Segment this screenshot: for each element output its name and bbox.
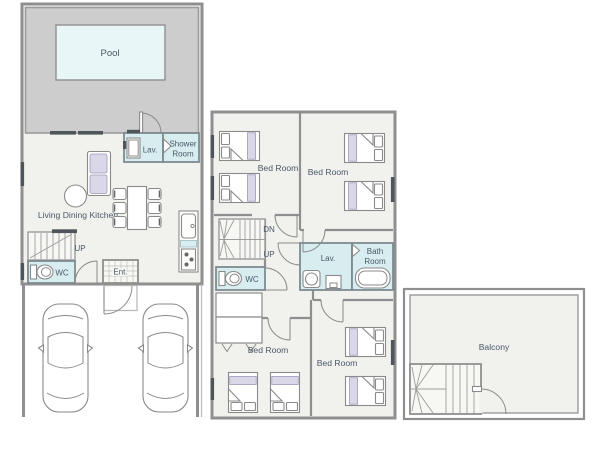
- window-bar: [21, 162, 25, 186]
- window-bar: [123, 141, 126, 149]
- shower-room-label-line2: Room: [172, 150, 194, 159]
- window-bar: [211, 176, 215, 200]
- lav-label-2f: Lav.: [321, 254, 336, 263]
- window-bar: [211, 378, 215, 400]
- bedroom-ne-label: Bed Room: [308, 167, 349, 177]
- window-bar: [50, 131, 76, 135]
- up-label: UP: [74, 244, 85, 253]
- window-bar: [52, 229, 77, 233]
- wc-label-2f: WC: [245, 275, 259, 284]
- bath-room-label-line1: Bath: [367, 247, 383, 256]
- bed-icon: [346, 377, 386, 406]
- balcony-label: Balcony: [479, 342, 510, 352]
- balcony-plan: Balcony: [404, 289, 584, 419]
- bed-icon: [346, 328, 386, 357]
- window-bar: [391, 340, 395, 365]
- bed-icon: [345, 182, 385, 211]
- first-floor-plan: Pool Lav. Shower Room Living Dining Kitc…: [21, 4, 203, 417]
- door-opening: [479, 390, 482, 413]
- bed-icon: [220, 132, 260, 161]
- lav-label: Lav.: [143, 146, 158, 155]
- round-table-icon: [65, 185, 87, 207]
- bed-icon: [229, 373, 258, 413]
- bedroom-se-label: Bed Room: [317, 358, 358, 368]
- entrance-label: Ent.: [113, 268, 127, 277]
- bath-room-label-line2: Room: [364, 257, 386, 266]
- shower-room-label-line1: Shower: [169, 140, 196, 149]
- ldk-label: Living Dining Kitchen: [38, 210, 118, 220]
- bathtub-icon: [356, 268, 391, 288]
- toilet-icon: [31, 265, 54, 279]
- washing-machine-icon: [326, 276, 341, 289]
- toilet-icon: [219, 272, 242, 286]
- car-icon: [139, 304, 193, 412]
- second-floor-plan: Bed Room Bed Room: [211, 112, 396, 418]
- window-bar: [21, 263, 25, 280]
- dining-table-icon: [128, 187, 147, 230]
- bed-icon: [271, 373, 300, 413]
- stairs-icon: [410, 364, 481, 414]
- washbasin-icon: [303, 271, 320, 288]
- stairs-icon: [28, 232, 75, 260]
- kitchen-sink-icon: [182, 214, 196, 238]
- entrance-area: Ent.: [103, 260, 138, 283]
- pool-label: Pool: [100, 48, 119, 59]
- dn-label: DN: [263, 225, 275, 234]
- wc-label: WC: [55, 269, 69, 278]
- sofa-icon: [88, 152, 111, 196]
- floor-plan-page: Pool Lav. Shower Room Living Dining Kitc…: [0, 0, 600, 450]
- bedroom-nw-label: Bed Room: [258, 163, 299, 173]
- window-bar: [127, 130, 140, 133]
- car-icon: [39, 304, 93, 412]
- floor-plan-drawing: Pool Lav. Shower Room Living Dining Kitc…: [0, 0, 600, 450]
- window-bar: [391, 177, 395, 202]
- garage: [24, 284, 202, 417]
- up-label-2f: UP: [263, 250, 274, 259]
- window-bar: [211, 135, 215, 158]
- bed-icon: [345, 134, 385, 163]
- bedroom-sw-label: Bed Room: [248, 345, 289, 355]
- stairs-icon: [219, 219, 265, 259]
- door-arc-icon: [104, 286, 132, 314]
- window-bar: [78, 131, 103, 135]
- kitchen-counter: [179, 211, 198, 272]
- bed-icon: [220, 174, 260, 203]
